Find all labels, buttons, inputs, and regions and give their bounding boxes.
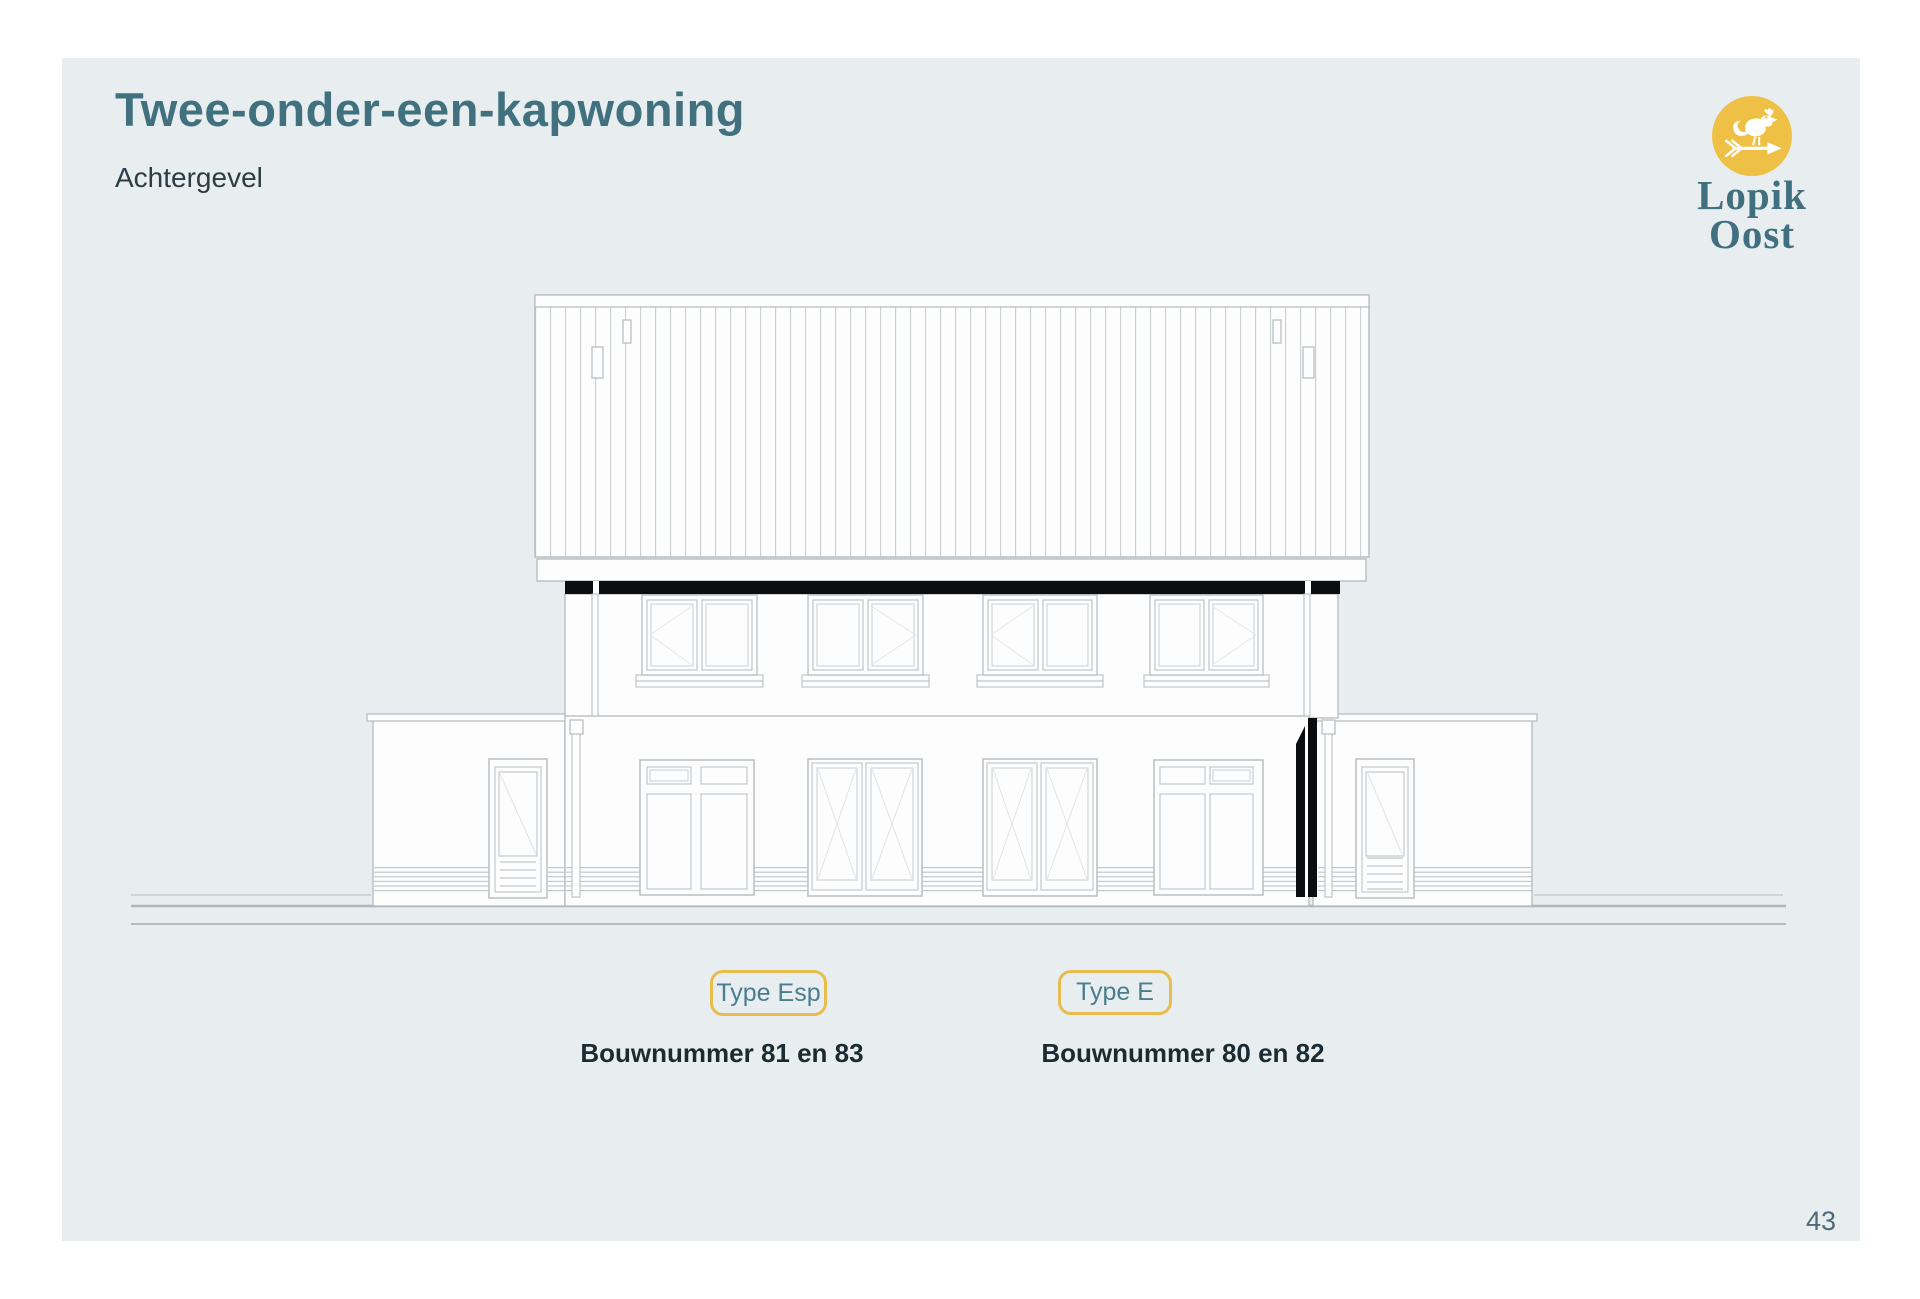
french-doors-left	[808, 759, 922, 896]
roof-vent	[1273, 320, 1281, 343]
upper-window-1	[636, 595, 763, 687]
type-e-badge: Type E	[1058, 970, 1172, 1015]
ground-combo-right	[1154, 760, 1263, 895]
black-fascia-bar	[565, 581, 1340, 594]
rear-elevation-drawing	[62, 58, 1860, 1241]
french-doors-right	[983, 759, 1097, 896]
caption-bouwnummer-80-82: Bouwnummer 80 en 82	[1023, 1038, 1343, 1069]
page-card: Twee-onder-een-kapwoning Achtergevel Lop…	[62, 58, 1860, 1241]
type-esp-badge: Type Esp	[710, 970, 827, 1016]
right-extension-door	[1356, 759, 1414, 898]
left-extension-door	[489, 759, 547, 898]
roof-vent	[623, 320, 631, 343]
gutter-fascia	[537, 559, 1366, 581]
upper-window-3	[977, 595, 1103, 687]
left-extension	[367, 714, 590, 906]
upper-window-2	[802, 595, 929, 687]
roof-vent	[1303, 347, 1314, 378]
upper-window-4	[1144, 595, 1269, 687]
roof-vent	[592, 347, 603, 378]
caption-bouwnummer-81-83: Bouwnummer 81 en 83	[562, 1038, 882, 1069]
page-number: 43	[1791, 1206, 1851, 1237]
roof-volume	[535, 295, 1369, 581]
ground-combo-left	[640, 760, 754, 895]
right-extension	[1311, 714, 1537, 906]
